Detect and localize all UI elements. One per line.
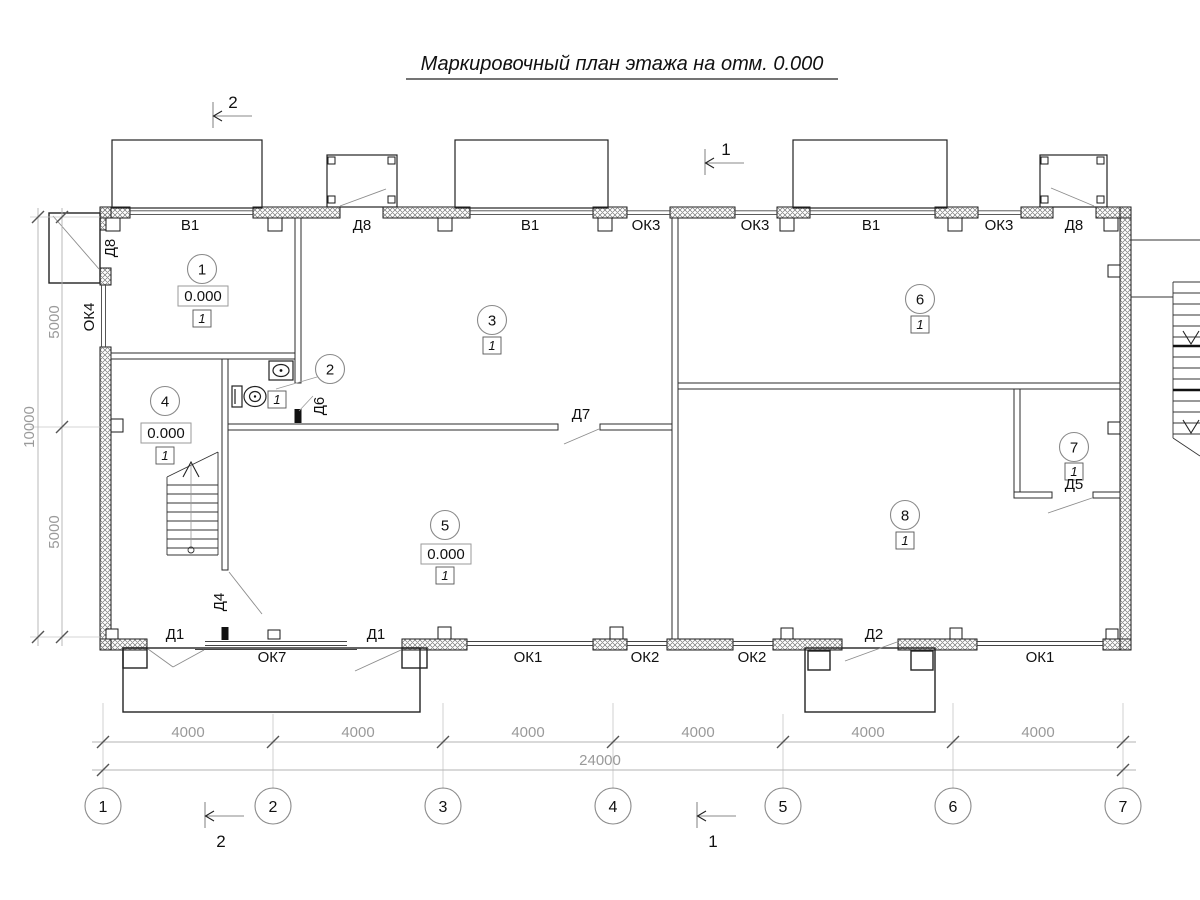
room-1-marker: 1 0.000 1 (178, 255, 228, 328)
stair-down-arrow-icon (1183, 331, 1199, 344)
section-number: 1 (721, 140, 730, 159)
axis-number: 4 (609, 799, 618, 816)
entry-canopies (112, 140, 1107, 208)
door-jamb-d6 (295, 409, 302, 423)
section-mark-bottom-right: 1 (697, 802, 736, 851)
title-block: Маркировочный план этажа на отм. 0.000 (406, 53, 838, 79)
partition-mid-right (600, 424, 673, 430)
window-ok3-b (735, 211, 777, 215)
partition-room7-left (1014, 389, 1020, 497)
span-dim: 4000 (851, 724, 884, 741)
room-6-marker: 6 1 (906, 285, 935, 334)
partition-room7-bottom-right (1093, 492, 1120, 498)
window-ok2-left (627, 642, 667, 646)
room-number: 2 (326, 362, 334, 379)
window-ok3-c (978, 211, 1021, 215)
span-dim: 4000 (341, 724, 374, 741)
partition-room1-right (295, 218, 301, 383)
window-label-ok2: ОК2 (738, 649, 767, 666)
window-label-ok2: ОК2 (631, 649, 660, 666)
bottom-dimensions: 4000 4000 4000 4000 4000 4000 24000 1 2 … (85, 703, 1141, 824)
room-4-marker: 4 0.000 1 (141, 387, 191, 465)
finish-type: 1 (488, 338, 495, 353)
partition-mid-left (228, 424, 558, 430)
internal-stair-treads (167, 485, 218, 548)
room-7-marker: 7 1 (1060, 433, 1089, 481)
elevation-value: 0.000 (147, 425, 185, 442)
window-b1-top-mid (470, 211, 593, 215)
axis-number: 5 (779, 799, 788, 816)
external-stair (1131, 240, 1200, 456)
axis-number: 7 (1119, 799, 1128, 816)
finish-type: 1 (916, 317, 923, 332)
canopy-b1-right (793, 140, 947, 208)
left-dim-total: 10000 (21, 406, 38, 448)
room-number: 8 (901, 508, 909, 525)
porch-left-entry (49, 213, 100, 283)
room-2-marker: 2 1 (268, 355, 345, 409)
finish-type: 1 (441, 568, 448, 583)
floor-plan-sheet: Маркировочный план этажа на отм. 0.000 2… (0, 0, 1200, 900)
window-label-b1: В1 (862, 217, 880, 234)
window-b1-top-left (130, 211, 253, 215)
elevation-value: 0.000 (184, 288, 222, 305)
external-stair-treads (1173, 293, 1200, 434)
internal-stair (167, 452, 218, 555)
partition-room6-room8 (678, 383, 1120, 389)
room-number: 3 (488, 313, 496, 330)
room-number: 7 (1070, 440, 1078, 457)
window-label-ok1: ОК1 (514, 649, 543, 666)
window-b1-top-right (810, 211, 935, 215)
window-ok3-a (627, 211, 670, 215)
window-ok1-left (467, 642, 593, 646)
window-label-b1: В1 (181, 217, 199, 234)
room-markers: 1 0.000 1 2 1 3 1 4 0.000 1 5 (141, 255, 1089, 585)
window-label-ok3: ОК3 (741, 217, 770, 234)
axis-number: 1 (99, 799, 108, 816)
section-number: 1 (708, 832, 717, 851)
door-label-d1: Д1 (367, 626, 386, 643)
partition-stair-hall (222, 359, 228, 570)
canopy-b1-left (112, 140, 262, 208)
axis-number: 6 (949, 799, 958, 816)
room-3-marker: 3 1 (478, 306, 507, 355)
partition-center-vertical (672, 218, 678, 639)
interior-partitions (111, 218, 1120, 640)
section-mark-top-left: 2 (213, 93, 252, 128)
door-label-d2: Д2 (865, 626, 884, 643)
window-ok2-right (733, 642, 773, 646)
left-dim-bottom: 5000 (46, 515, 63, 548)
partition-room7-bottom-left (1014, 492, 1052, 498)
window-label-ok3: ОК3 (985, 217, 1014, 234)
door-label-d6: Д6 (311, 397, 328, 416)
elevation-value: 0.000 (427, 546, 465, 563)
span-dim: 4000 (681, 724, 714, 741)
door-label-d4: Д4 (211, 593, 228, 612)
total-dim: 24000 (579, 752, 621, 769)
door-label-d8: Д8 (1065, 217, 1084, 234)
room-number: 1 (198, 262, 206, 279)
window-ok4 (102, 285, 106, 347)
left-dimensions: 5000 5000 10000 (21, 208, 100, 646)
page-title: Маркировочный план этажа на отм. 0.000 (421, 53, 824, 75)
span-dim: 4000 (1021, 724, 1054, 741)
window-ok1-right (977, 642, 1103, 646)
opening-labels: В1 Д8 В1 ОК3 ОК3 В1 ОК3 Д8 Д8 ОК4 Д1 ОК7… (81, 217, 1083, 666)
section-number: 2 (228, 93, 237, 112)
sink-icon (269, 361, 293, 380)
finish-type: 1 (273, 392, 280, 407)
room-5-marker: 5 0.000 1 (421, 511, 471, 585)
room-number: 6 (916, 292, 924, 309)
canopy-b1-mid (455, 140, 608, 208)
door-label-d8-left: Д8 (102, 239, 119, 258)
span-dim: 4000 (171, 724, 204, 741)
axis-bubbles: 1 2 3 4 5 6 7 (85, 788, 1141, 824)
toilet-icon (232, 386, 266, 407)
section-mark-bottom-left: 2 (205, 802, 244, 851)
door-jamb-d4 (222, 627, 229, 640)
door-label-d8: Д8 (353, 217, 372, 234)
floor-plan-drawing: Маркировочный план этажа на отм. 0.000 2… (0, 0, 1200, 900)
door-label-d1: Д1 (166, 626, 185, 643)
left-dim-top: 5000 (46, 305, 63, 338)
window-label-ok3: ОК3 (632, 217, 661, 234)
room-8-marker: 8 1 (891, 501, 920, 550)
door-leaves (53, 188, 1094, 671)
axis-number: 3 (439, 799, 448, 816)
door-label-d7: Д7 (572, 406, 591, 423)
porch-d2 (805, 648, 935, 712)
axis-number: 2 (269, 799, 278, 816)
window-label-ok7: ОК7 (258, 649, 287, 666)
canopy-d8-left (327, 155, 397, 207)
finish-type: 1 (901, 533, 908, 548)
window-label-ok4: ОК4 (81, 303, 98, 332)
span-dim: 4000 (511, 724, 544, 741)
finish-type: 1 (161, 448, 168, 463)
finish-type: 1 (198, 311, 205, 326)
partition-room1-bottom (111, 353, 301, 359)
section-number: 2 (216, 832, 225, 851)
window-label-b1: В1 (521, 217, 539, 234)
room-number: 5 (441, 518, 449, 535)
window-label-ok1: ОК1 (1026, 649, 1055, 666)
section-mark-top-right: 1 (705, 140, 744, 175)
door-label-d5: Д5 (1065, 476, 1084, 493)
stair-down-arrow-icon (1183, 420, 1199, 433)
room-number: 4 (161, 394, 169, 411)
